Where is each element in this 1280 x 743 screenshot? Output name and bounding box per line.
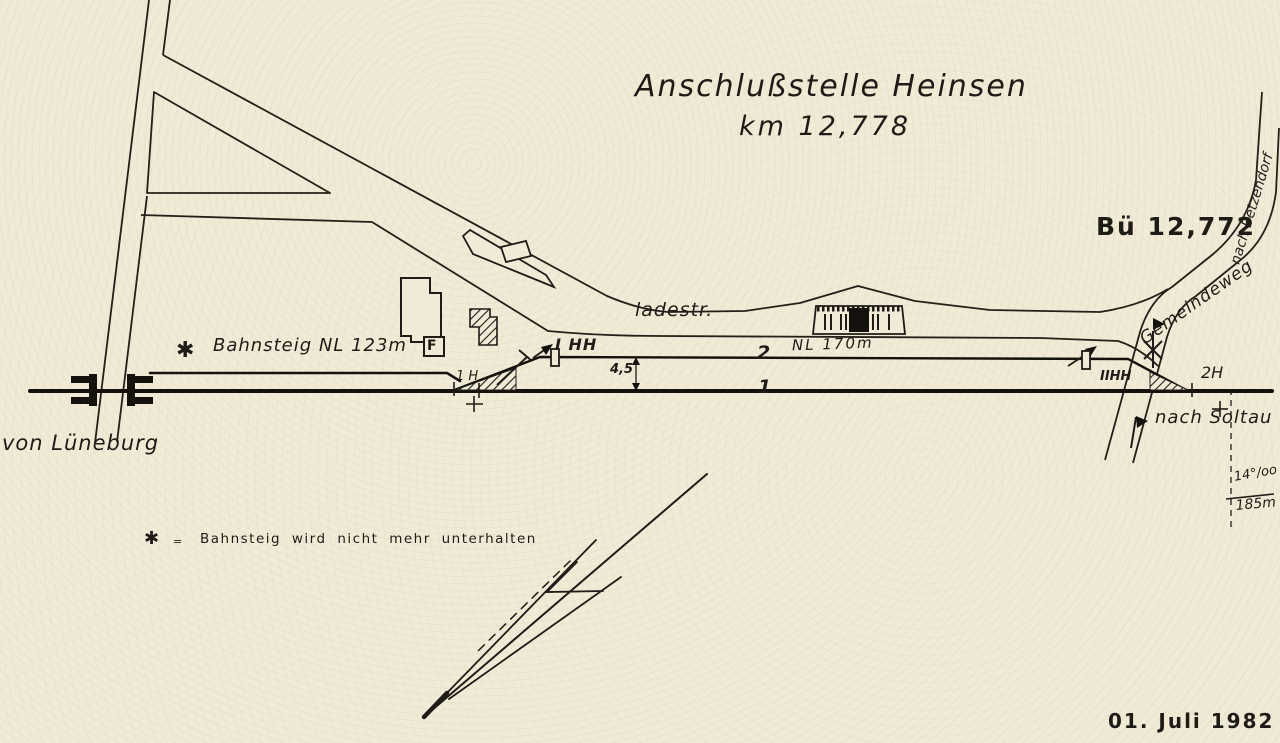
spacing-dimension-icon bbox=[632, 357, 640, 391]
spacing-label: 4,5 bbox=[610, 363, 633, 376]
signal-left-label: I HH bbox=[555, 337, 597, 353]
north-arrow-icon bbox=[424, 474, 707, 717]
switch2-label: 2H bbox=[1201, 365, 1223, 381]
road-vertical-right-edge-top bbox=[163, 0, 170, 55]
hatched-building bbox=[470, 309, 497, 345]
track2-number: 2 bbox=[757, 344, 770, 363]
loading-street-label: ladestr. bbox=[635, 301, 713, 320]
signal-right-label: IIHH bbox=[1100, 370, 1131, 383]
direction-soltau-label: nach Soltau bbox=[1155, 409, 1272, 427]
siding-track-2 bbox=[452, 357, 1188, 391]
switch2-hatch-wedge bbox=[1150, 372, 1188, 390]
ramp-hut bbox=[501, 241, 531, 262]
plan-km: km 12,778 bbox=[635, 113, 1015, 140]
goods-shed-dark-bay bbox=[849, 308, 869, 332]
legend-star-icon: ✱ bbox=[144, 530, 159, 548]
track2-length-label: NL 170m bbox=[792, 336, 874, 354]
road-junction-island bbox=[147, 92, 330, 193]
track1-number: 1 bbox=[758, 378, 771, 397]
crossing-km-label: Bü 12,772 bbox=[1096, 214, 1256, 239]
plan-date: 01. Juli 1982 bbox=[1108, 711, 1274, 731]
platform-star-icon: ✱ bbox=[176, 340, 194, 362]
plan-title: Anschlußstelle Heinsen bbox=[635, 72, 1015, 102]
plan-linework bbox=[0, 0, 1280, 743]
legend-separator: = bbox=[173, 536, 182, 547]
switch1-label: 1 H bbox=[456, 370, 478, 383]
platform-label: Bahnsteig NL 123m bbox=[213, 337, 407, 355]
legend-text: Bahnsteig wird nicht mehr unterhalten bbox=[200, 533, 537, 547]
crossing-sign-lower-icon bbox=[1131, 416, 1148, 448]
direction-lueneburg-label: von Lüneburg bbox=[2, 433, 159, 454]
platform-edge bbox=[150, 373, 460, 381]
gradient-length-label: 185m bbox=[1235, 495, 1276, 512]
phone-box-label: F bbox=[427, 339, 437, 353]
track-plan: Anschlußstelle Heinsen km 12,778 Bü 12,7… bbox=[0, 0, 1280, 743]
station-building bbox=[401, 278, 441, 342]
switch2-arrow-icon bbox=[1068, 346, 1097, 369]
